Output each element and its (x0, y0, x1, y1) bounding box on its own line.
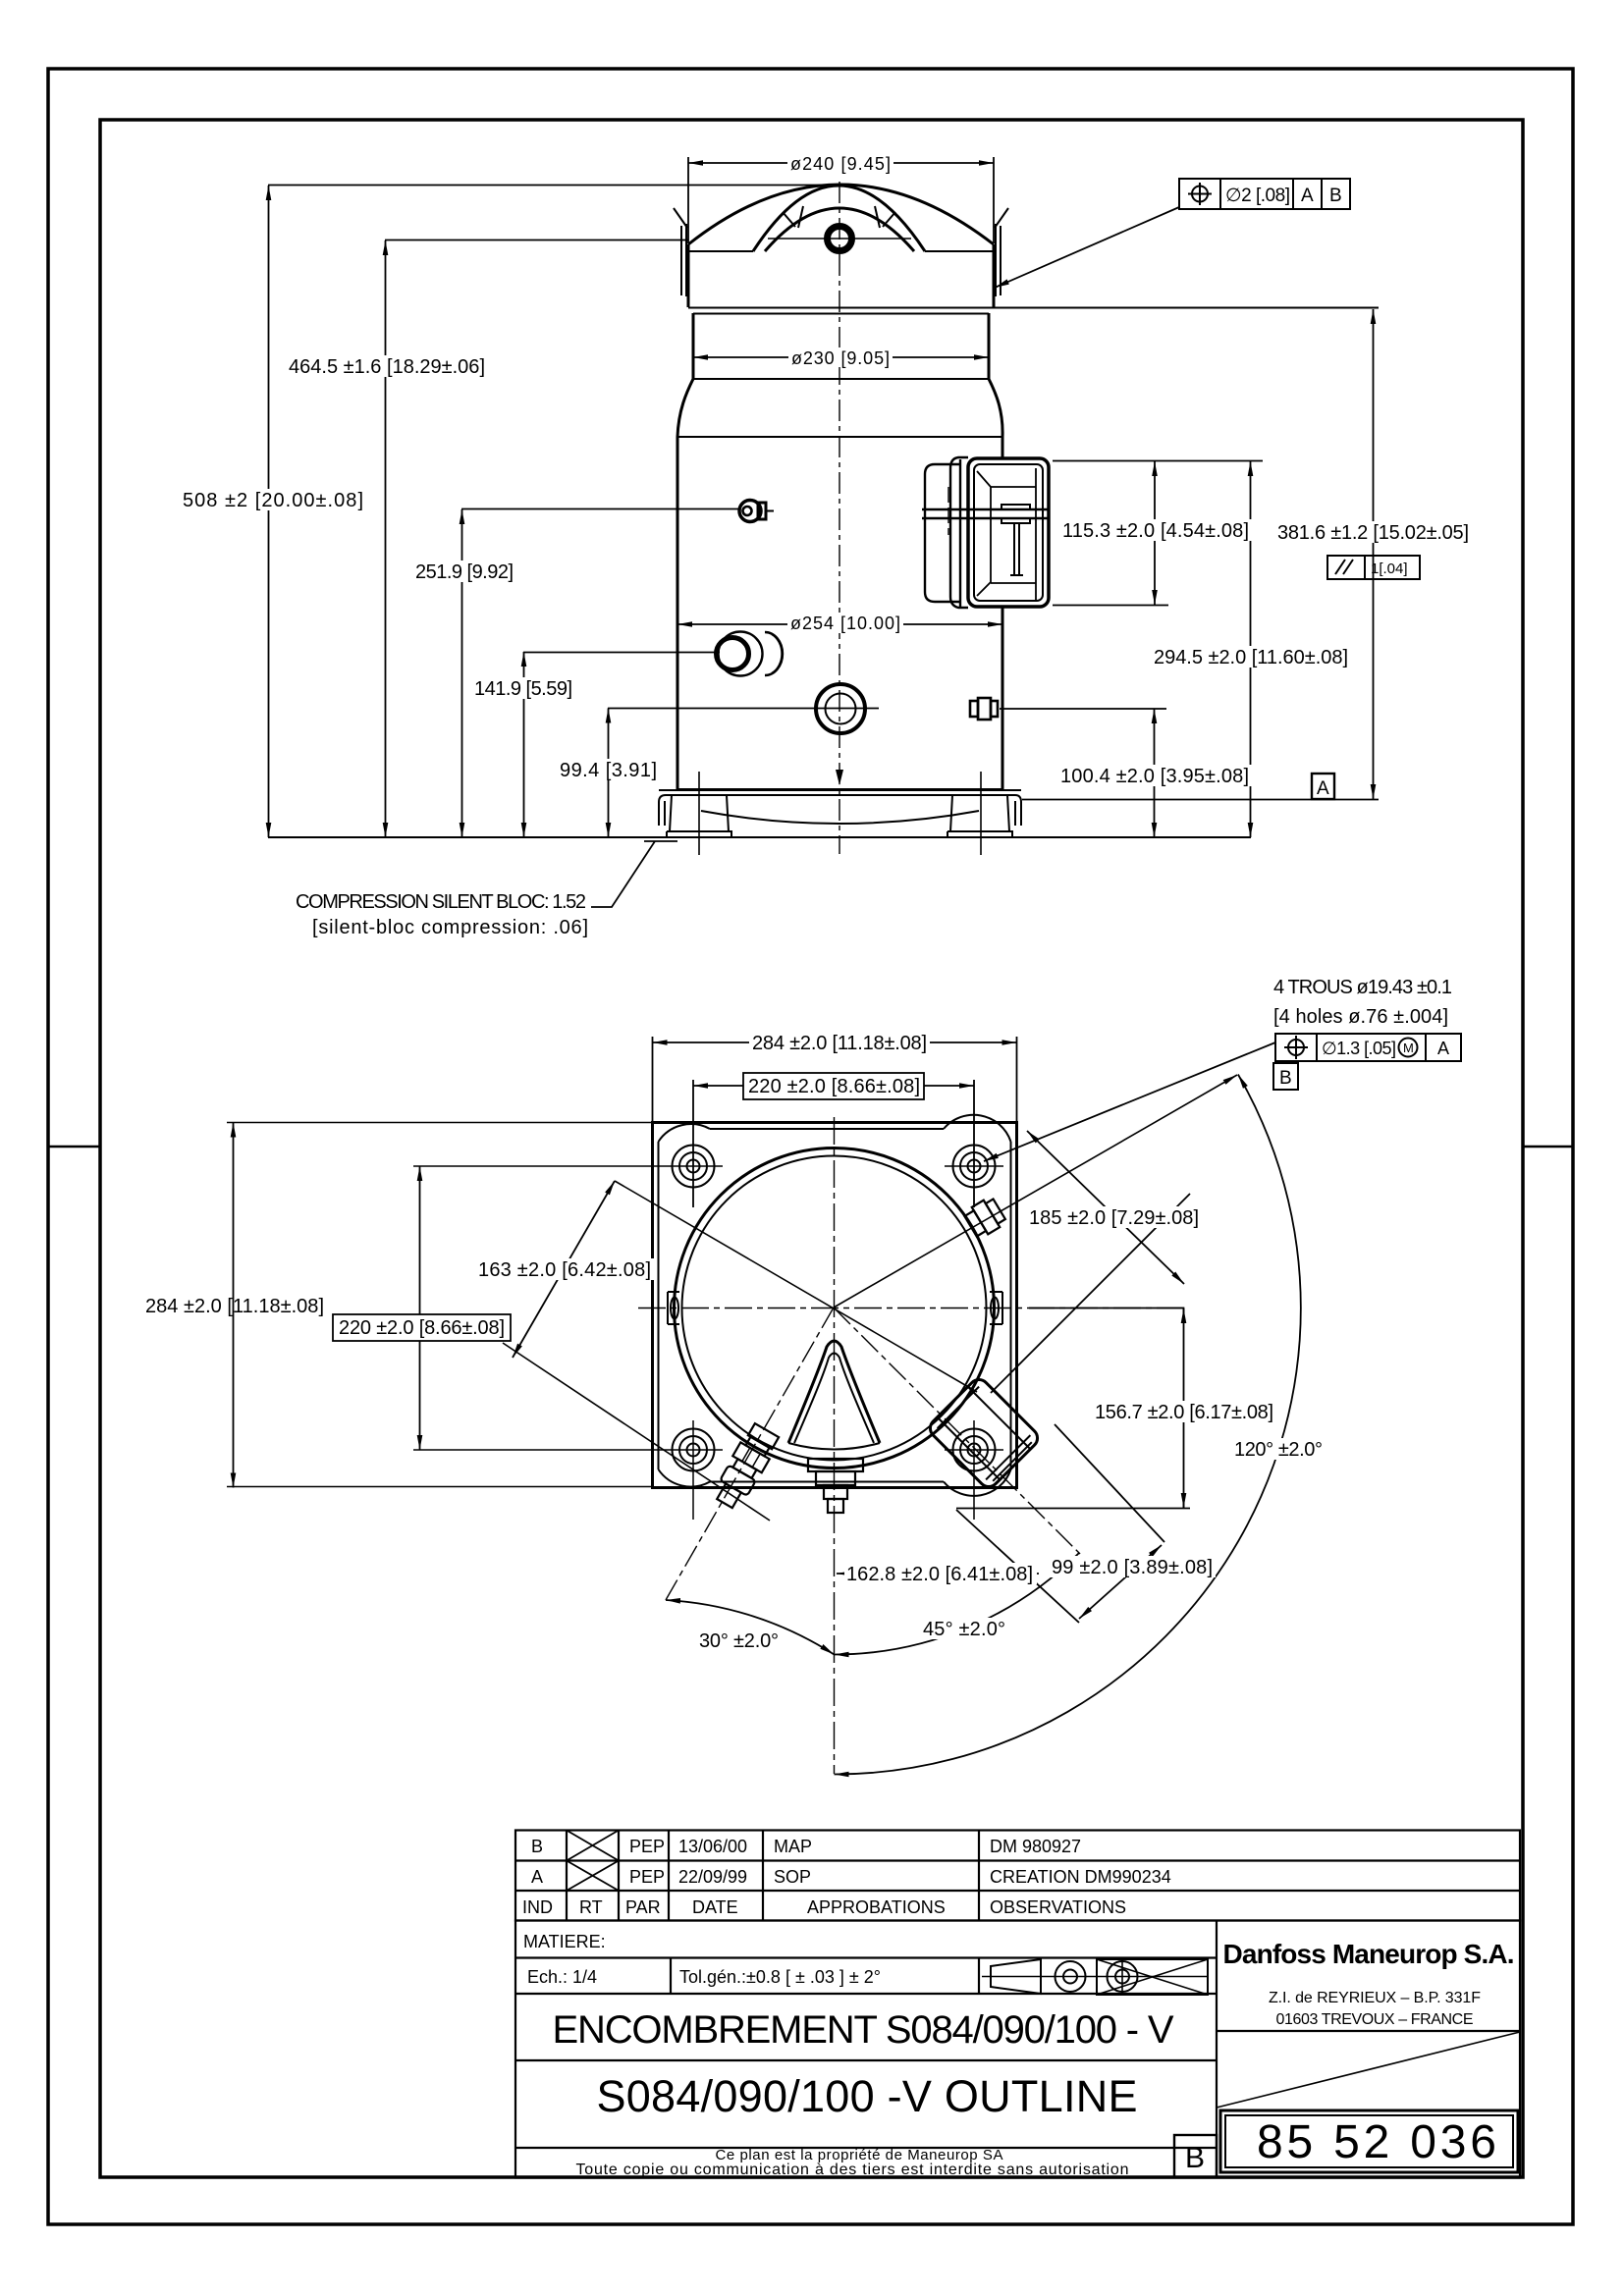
svg-text:MAP: MAP (774, 1837, 812, 1856)
svg-text:220 ±2.0 [8.66±.08]: 220 ±2.0 [8.66±.08] (748, 1076, 920, 1097)
svg-text:ENCOMBREMENT S084/090/100 - V: ENCOMBREMENT S084/090/100 - V (553, 2008, 1174, 2052)
svg-text:185 ±2.0 [7.29±.08]: 185 ±2.0 [7.29±.08] (1029, 1207, 1199, 1229)
svg-text:Z.I. de REYRIEUX – B.P. 331F: Z.I. de REYRIEUX – B.P. 331F (1269, 1990, 1481, 2006)
svg-text:464.5 ±1.6 [18.29±.06]: 464.5 ±1.6 [18.29±.06] (289, 356, 485, 378)
svg-text:S084/090/100 -V OUTLINE: S084/090/100 -V OUTLINE (597, 2071, 1138, 2121)
svg-text:156.7 ±2.0 [6.17±.08]: 156.7 ±2.0 [6.17±.08] (1095, 1402, 1273, 1423)
svg-text:B: B (1329, 186, 1342, 206)
svg-text:A: A (1301, 186, 1314, 206)
svg-text:ø230 [9.05]: ø230 [9.05] (791, 348, 890, 368)
svg-text:CREATION DM990234: CREATION DM990234 (990, 1867, 1171, 1887)
svg-text:100.4 ±2.0 [3.95±.08]: 100.4 ±2.0 [3.95±.08] (1060, 766, 1249, 787)
svg-text:COMPRESSION SILENT BLOC: 1.52: COMPRESSION SILENT BLOC: 1.52 (296, 891, 586, 913)
svg-text:PEP: PEP (629, 1837, 665, 1856)
svg-text:284 ±2.0 [11.18±.08]: 284 ±2.0 [11.18±.08] (145, 1296, 324, 1317)
svg-text:B: B (531, 1837, 543, 1856)
svg-text:∅2 [.08]: ∅2 [.08] (1225, 186, 1290, 206)
svg-text:Tol.gén.:±0.8 [ ± .03 ]: Tol.gén.:±0.8 [ ± .03 ] ± 2° (679, 1967, 881, 1987)
svg-text:A: A (531, 1867, 543, 1887)
svg-text:30° ±2.0°: 30° ±2.0° (699, 1630, 779, 1652)
svg-text:508 ±2 [20.00±.08]: 508 ±2 [20.00±.08] (183, 490, 363, 511)
svg-text:13/06/00: 13/06/00 (678, 1837, 747, 1856)
svg-text:PEP: PEP (629, 1867, 665, 1887)
svg-text:Danfoss Maneurop S.A.: Danfoss Maneurop S.A. (1223, 1939, 1515, 1969)
svg-text:1[.04]: 1[.04] (1371, 561, 1408, 577)
svg-text:163 ±2.0 [6.42±.08]: 163 ±2.0 [6.42±.08] (478, 1259, 651, 1281)
svg-text:4 TROUS ø19.43 ±0.1: 4 TROUS ø19.43 ±0.1 (1273, 977, 1452, 998)
svg-text:381.6 ±1.2 [15.02±.05]: 381.6 ±1.2 [15.02±.05] (1277, 522, 1469, 544)
svg-text:220 ±2.0 [8.66±.08]: 220 ±2.0 [8.66±.08] (339, 1317, 505, 1339)
svg-text:141.9 [5.59]: 141.9 [5.59] (474, 678, 572, 700)
svg-text:[4 holes ø.76 ±.004]: [4 holes ø.76 ±.004] (1273, 1006, 1448, 1028)
svg-text:251.9 [9.92]: 251.9 [9.92] (415, 561, 514, 583)
svg-text:294.5 ±2.0 [11.60±.08]: 294.5 ±2.0 [11.60±.08] (1154, 647, 1348, 668)
svg-text:120° ±2.0°: 120° ±2.0° (1234, 1439, 1323, 1461)
svg-text:MATIERE:: MATIERE: (523, 1932, 606, 1951)
svg-text:B: B (1185, 2142, 1205, 2174)
svg-text:22/09/99: 22/09/99 (678, 1867, 747, 1887)
svg-text:01603 TREVOUX – FRANCE: 01603 TREVOUX – FRANCE (1276, 2011, 1474, 2028)
svg-text:Toute copie ou communication à: Toute copie ou communication à des tiers… (576, 2162, 1129, 2178)
svg-text:115.3 ±2.0 [4.54±.08]: 115.3 ±2.0 [4.54±.08] (1062, 520, 1249, 542)
svg-text:[silent-bloc compression: .06: [silent-bloc compression: .06] (312, 917, 588, 938)
svg-text:162.8 ±2.0 [6.41±.08]: 162.8 ±2.0 [6.41±.08] (846, 1564, 1033, 1585)
svg-text:B: B (1279, 1068, 1292, 1089)
svg-text:∅1.3 [.05]: ∅1.3 [.05] (1322, 1039, 1396, 1058)
svg-text:ø254 [10.00]: ø254 [10.00] (790, 614, 900, 633)
svg-text:APPROBATIONS: APPROBATIONS (807, 1897, 946, 1917)
svg-text:IND: IND (522, 1897, 553, 1917)
svg-text:PAR: PAR (625, 1897, 661, 1917)
svg-text:RT: RT (579, 1897, 603, 1917)
svg-text:A: A (1437, 1039, 1449, 1058)
svg-text:A: A (1317, 778, 1329, 799)
svg-text:99 ±2.0 [3.89±.08]: 99 ±2.0 [3.89±.08] (1052, 1557, 1213, 1578)
svg-text:OBSERVATIONS: OBSERVATIONS (990, 1897, 1126, 1917)
svg-text:M: M (1403, 1041, 1414, 1055)
svg-text:Ech.: 1/4: Ech.: 1/4 (527, 1967, 597, 1987)
svg-text:85 52 036: 85 52 036 (1257, 2116, 1496, 2168)
svg-text:45° ±2.0°: 45° ±2.0° (923, 1619, 1005, 1640)
svg-text:DATE: DATE (692, 1897, 738, 1917)
svg-text:DM 980927: DM 980927 (990, 1837, 1081, 1856)
svg-text:284 ±2.0 [11.18±.08]: 284 ±2.0 [11.18±.08] (752, 1033, 927, 1054)
svg-text:ø240 [9.45]: ø240 [9.45] (790, 154, 891, 174)
svg-text:99.4 [3.91]: 99.4 [3.91] (560, 760, 657, 781)
svg-text:SOP: SOP (774, 1867, 811, 1887)
